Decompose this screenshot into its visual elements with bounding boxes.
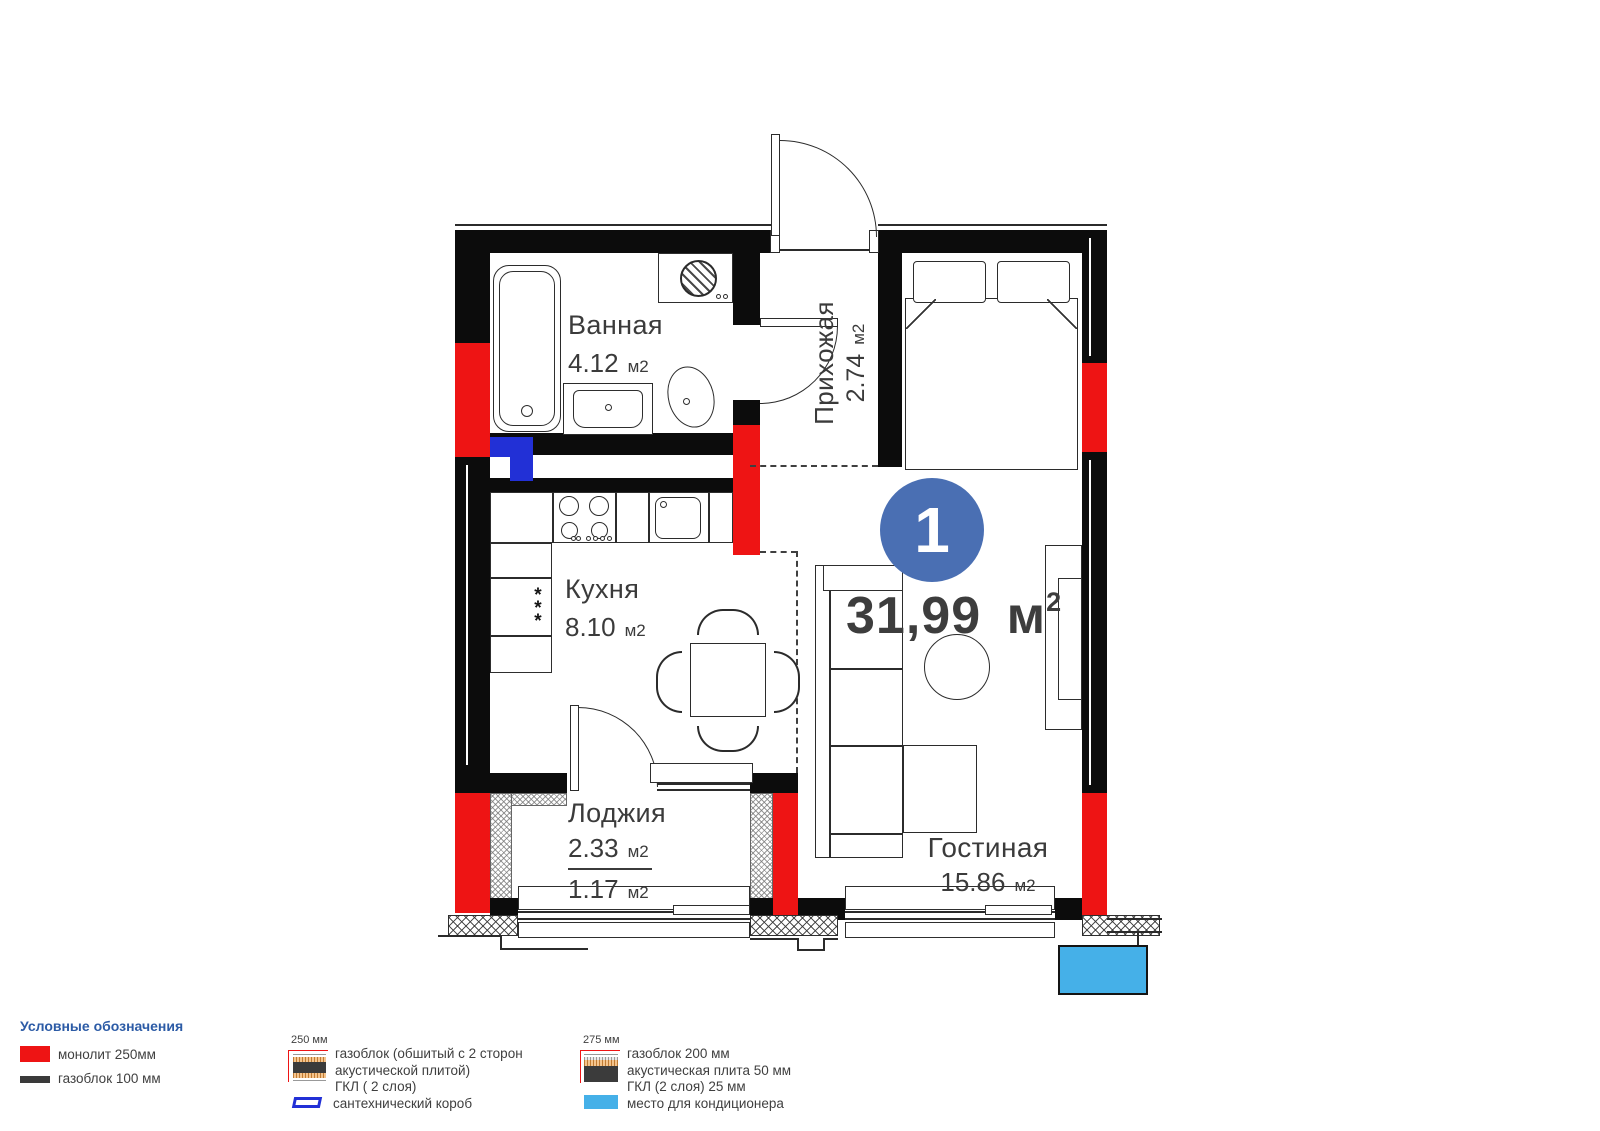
window-sliding-pane — [985, 905, 1052, 915]
window-glazing — [657, 789, 750, 791]
plumbing-duct — [490, 437, 533, 457]
room-name: Ванная — [568, 310, 663, 341]
wall — [455, 230, 772, 253]
chair — [697, 609, 759, 635]
facade-line — [1107, 931, 1162, 933]
room-count: 1 — [914, 493, 950, 567]
hinge-dot — [716, 294, 721, 299]
facade-line — [797, 949, 825, 951]
facade-line — [1107, 918, 1162, 920]
window-glazing — [518, 918, 750, 920]
counter-divider — [552, 492, 554, 543]
legend-title: Условные обозначения — [20, 1018, 183, 1034]
floor-plan: * * * Ванная 4.12 м2 — [0, 0, 1600, 1131]
toilet — [661, 361, 721, 433]
room-area-unit: м2 — [1014, 876, 1035, 896]
legend-wall250-swatch — [293, 1054, 326, 1081]
facade-line — [823, 938, 838, 940]
dim-bracket — [288, 1050, 289, 1082]
wall-monolith — [455, 343, 490, 457]
cabinet-divider — [490, 635, 552, 637]
legend-plumbing-swatch — [292, 1097, 322, 1108]
room-area: 2.74 — [842, 354, 871, 403]
loggia-wall-hatch — [750, 793, 773, 915]
stove-knob — [600, 536, 605, 541]
zone-dashed-line — [760, 551, 797, 553]
stove-knob — [593, 536, 598, 541]
window-outer-sill — [518, 922, 750, 938]
room-label-living: Гостиная 15.86 м2 — [893, 832, 1083, 898]
entry-door-leaf — [771, 134, 780, 236]
legend-monolith-swatch — [20, 1046, 50, 1062]
loggia-wall-hatch — [490, 793, 512, 915]
hinge-dot — [723, 294, 728, 299]
toilet-drain — [683, 398, 690, 405]
wall-bathroom — [733, 400, 760, 425]
sofa-cushion-line — [831, 668, 903, 670]
stove-knob — [607, 536, 612, 541]
room-label-loggia: Лоджия 2.33 м2 1.17 м2 — [568, 798, 666, 905]
legend-plumbing-label: сантехнический короб — [333, 1096, 472, 1111]
room-area: 8.10 — [565, 612, 616, 643]
room-area: 2.33 — [568, 833, 619, 864]
room-area-unit: м2 — [849, 324, 869, 345]
facade-line — [500, 948, 588, 950]
window-glazing — [845, 918, 1055, 920]
legend-line: ГКЛ ( 2 слоя) — [335, 1079, 523, 1096]
blanket-fold — [1047, 299, 1077, 329]
window-jamb — [1055, 898, 1082, 920]
faucet-dot — [660, 501, 667, 508]
faucet-dot — [605, 404, 612, 411]
room-name: Лоджия — [568, 798, 666, 829]
dining-table — [690, 643, 766, 717]
legend-gasblock-swatch — [20, 1076, 50, 1083]
legend-line: ГКЛ (2 слоя) 25 мм — [627, 1079, 791, 1096]
cabinet-divider — [490, 577, 552, 579]
counter-divider — [708, 492, 710, 543]
sofa-cushion-line — [831, 745, 903, 747]
total-area-unit-sup: 2 — [1046, 587, 1062, 617]
legend-wall275-swatch — [584, 1054, 618, 1082]
wall-monolith — [1082, 793, 1107, 915]
chair — [697, 726, 759, 752]
insulation-hatch — [448, 915, 518, 936]
room-label-kitchen: Кухня 8.10 м2 — [565, 574, 646, 643]
legend-line: газоблок 200 мм — [627, 1046, 791, 1063]
blanket-fold — [906, 299, 936, 329]
total-area-label: 31,99 м2 — [846, 586, 1062, 646]
wall-monolith — [1082, 363, 1107, 452]
room-area: 4.12 — [568, 348, 619, 379]
pillow — [913, 261, 986, 303]
stove-burner — [589, 496, 609, 516]
room-area-unit: м2 — [628, 883, 649, 903]
legend: Условные обозначения монолит 250мм газоб… — [0, 1005, 1600, 1131]
zone-dashed-line — [796, 551, 798, 773]
dim-bracket — [288, 1050, 328, 1051]
plumbing-duct — [510, 455, 533, 481]
wall — [878, 230, 1107, 253]
wall-monolith — [733, 425, 760, 555]
wall-hall-bedroom — [878, 230, 902, 467]
wall — [455, 230, 490, 343]
wall-loggia — [455, 773, 567, 793]
stove-knob — [576, 536, 581, 541]
legend-gasblock-label: газоблок 100 мм — [58, 1071, 161, 1086]
dim-bracket — [580, 1050, 581, 1083]
loggia-door-swing-arc — [578, 707, 658, 787]
leg-wall250-dim: 250 мм — [291, 1034, 328, 1046]
wall — [1082, 452, 1107, 793]
wall-loggia — [750, 773, 798, 793]
wall-joint-line — [466, 465, 468, 765]
wall — [1082, 230, 1107, 363]
floor-plan-page: * * * Ванная 4.12 м2 — [0, 0, 1600, 1131]
wall-joint-line — [1089, 460, 1091, 785]
wall-monolith — [773, 793, 798, 915]
legend-wall250-label: газоблок (обшитый с 2 сторон акустическо… — [335, 1046, 523, 1096]
facade-line — [1137, 931, 1139, 945]
bathtub-drain — [521, 405, 533, 417]
legend-ac-label: место для кондиционера — [627, 1096, 784, 1111]
room-area-unit: м2 — [625, 621, 646, 641]
window-glazing — [657, 783, 750, 785]
room-name: Гостиная — [928, 832, 1049, 864]
washing-machine-icon — [680, 260, 717, 297]
room-name: Кухня — [565, 574, 646, 605]
legend-line: газоблок (обшитый с 2 сторон — [335, 1046, 523, 1063]
fridge-freezer-stars-icon: * * * — [526, 589, 550, 628]
counter-divider — [615, 492, 617, 543]
total-area-unit: м — [1007, 587, 1046, 645]
chair — [656, 651, 682, 713]
room-area-unit: м2 — [628, 842, 649, 862]
zone-dashed-line — [750, 465, 878, 467]
legend-line: акустическая плита 50 мм — [627, 1063, 791, 1080]
window-sliding-pane — [673, 905, 750, 915]
ac-spot — [1058, 945, 1148, 995]
room-area-unit: м2 — [628, 357, 649, 377]
bathtub-inner — [499, 271, 555, 426]
sofa-back-line — [829, 591, 831, 858]
insulation-hatch — [750, 915, 838, 936]
wall-bathroom — [733, 253, 760, 325]
counter-divider — [648, 492, 650, 543]
wall-outline — [455, 224, 772, 226]
entry-door-swing-arc — [780, 140, 877, 237]
room-area: 15.86 — [940, 867, 1005, 898]
legend-monolith-label: монолит 250мм — [58, 1047, 156, 1062]
total-area-value: 31,99 — [846, 587, 981, 645]
room-label-bathroom: Ванная 4.12 м2 — [568, 310, 663, 379]
room-name: Прихожая — [809, 301, 840, 425]
stove-burner — [559, 496, 579, 516]
facade-line — [438, 935, 502, 937]
dim-bracket — [580, 1050, 620, 1051]
legend-wall275-label: газоблок 200 мм акустическая плита 50 мм… — [627, 1046, 791, 1096]
pillow — [997, 261, 1070, 303]
wall — [455, 457, 490, 775]
window-sill — [650, 763, 753, 783]
stove-knob — [586, 536, 591, 541]
loggia-area-divider — [568, 868, 652, 870]
wall-outline — [878, 224, 1107, 226]
leg-wall275-dim: 275 мм — [583, 1034, 620, 1046]
wall-monolith — [455, 793, 490, 913]
room-label-hallway: Прихожая 2.74 м2 — [809, 268, 871, 458]
window-outer-sill — [845, 922, 1055, 938]
legend-ac-swatch — [584, 1095, 618, 1109]
room-area-reduced: 1.17 — [568, 874, 619, 905]
door-threshold — [780, 249, 869, 251]
wall-joint-line — [1089, 238, 1091, 356]
facade-line — [750, 938, 799, 940]
sofa-chaise — [903, 745, 977, 833]
legend-line: акустической плитой) — [335, 1063, 523, 1080]
room-count-badge: 1 — [880, 478, 984, 582]
